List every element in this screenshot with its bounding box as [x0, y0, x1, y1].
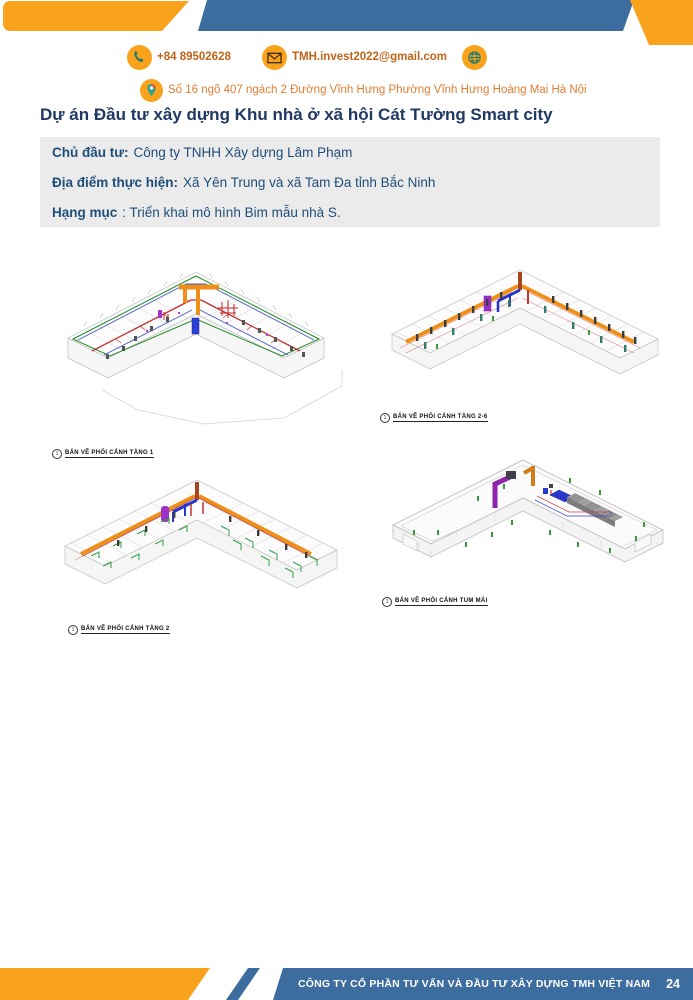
ground-outline: [102, 370, 342, 424]
page-number: 24: [666, 977, 680, 991]
footer-orange-bar: [0, 968, 210, 1000]
info-label: Địa điểm thực hiện:: [52, 175, 178, 190]
map-pin-icon: [140, 79, 163, 102]
bim-figure-floor1: [46, 258, 356, 450]
email-address: TMH.invest2022@gmail.com: [292, 51, 447, 63]
bim-figure-roof: [373, 450, 673, 596]
figure-caption-4: 1 BẢN VẼ PHỐI CẢNH TUM MÁI: [382, 597, 488, 607]
banner-orange-right: [630, 0, 693, 45]
figure-caption-3: 1 BẢN VẼ PHỐI CẢNH TẦNG 2: [68, 625, 170, 635]
bim-figure-typical-floor: [372, 260, 672, 412]
banner-orange-left: [3, 1, 189, 31]
bim-figure-floor2: [45, 468, 360, 626]
info-label: Hạng mục: [52, 205, 117, 220]
info-row-scope: Hạng mục : Triển khai mô hình Bim mẫu nh…: [40, 197, 660, 227]
email-icon: [262, 45, 287, 70]
phone-number: +84 89502628: [157, 51, 231, 63]
project-info-box: Chủ đầu tư: Công ty TNHH Xây dựng Lâm Ph…: [40, 137, 660, 227]
document-page: +84 89502628 TMH.invest2022@gmail.com Số…: [0, 0, 693, 1000]
info-label: Chủ đầu tư:: [52, 145, 129, 160]
banner-blue: [198, 0, 634, 31]
info-value: : Triển khai mô hình Bim mẫu nhà S.: [122, 205, 340, 220]
footer-company-name: CÔNG TY CỔ PHẦN TƯ VẤN VÀ ĐẦU TƯ XÂY DỰN…: [298, 978, 650, 990]
footer-blue-slash: [226, 968, 260, 1000]
footer: CÔNG TY CỔ PHẦN TƯ VẤN VÀ ĐẦU TƯ XÂY DỰN…: [283, 968, 693, 1000]
phone-icon: [127, 45, 152, 70]
page-title: Dự án Đầu tư xây dựng Khu nhà ở xã hội C…: [40, 105, 553, 125]
blue-riser: [192, 318, 199, 334]
globe-icon: [462, 45, 487, 70]
info-row-investor: Chủ đầu tư: Công ty TNHH Xây dựng Lâm Ph…: [40, 137, 660, 167]
info-value: Xã Yên Trung và xã Tam Đa tỉnh Bắc Ninh: [183, 175, 435, 190]
company-address: Số 16 ngõ 407 ngách 2 Đường Vĩnh Hưng Ph…: [168, 84, 587, 96]
figure-caption-2: 1 BẢN VẼ PHỐI CẢNH TẦNG 2-6: [380, 413, 488, 423]
info-row-location: Địa điểm thực hiện: Xã Yên Trung và xã T…: [40, 167, 660, 197]
header-banner: [0, 0, 693, 50]
figure-caption-1: 1 BẢN VẼ PHỐI CẢNH TẦNG 1: [52, 449, 154, 459]
info-value: Công ty TNHH Xây dựng Lâm Phạm: [134, 145, 353, 160]
